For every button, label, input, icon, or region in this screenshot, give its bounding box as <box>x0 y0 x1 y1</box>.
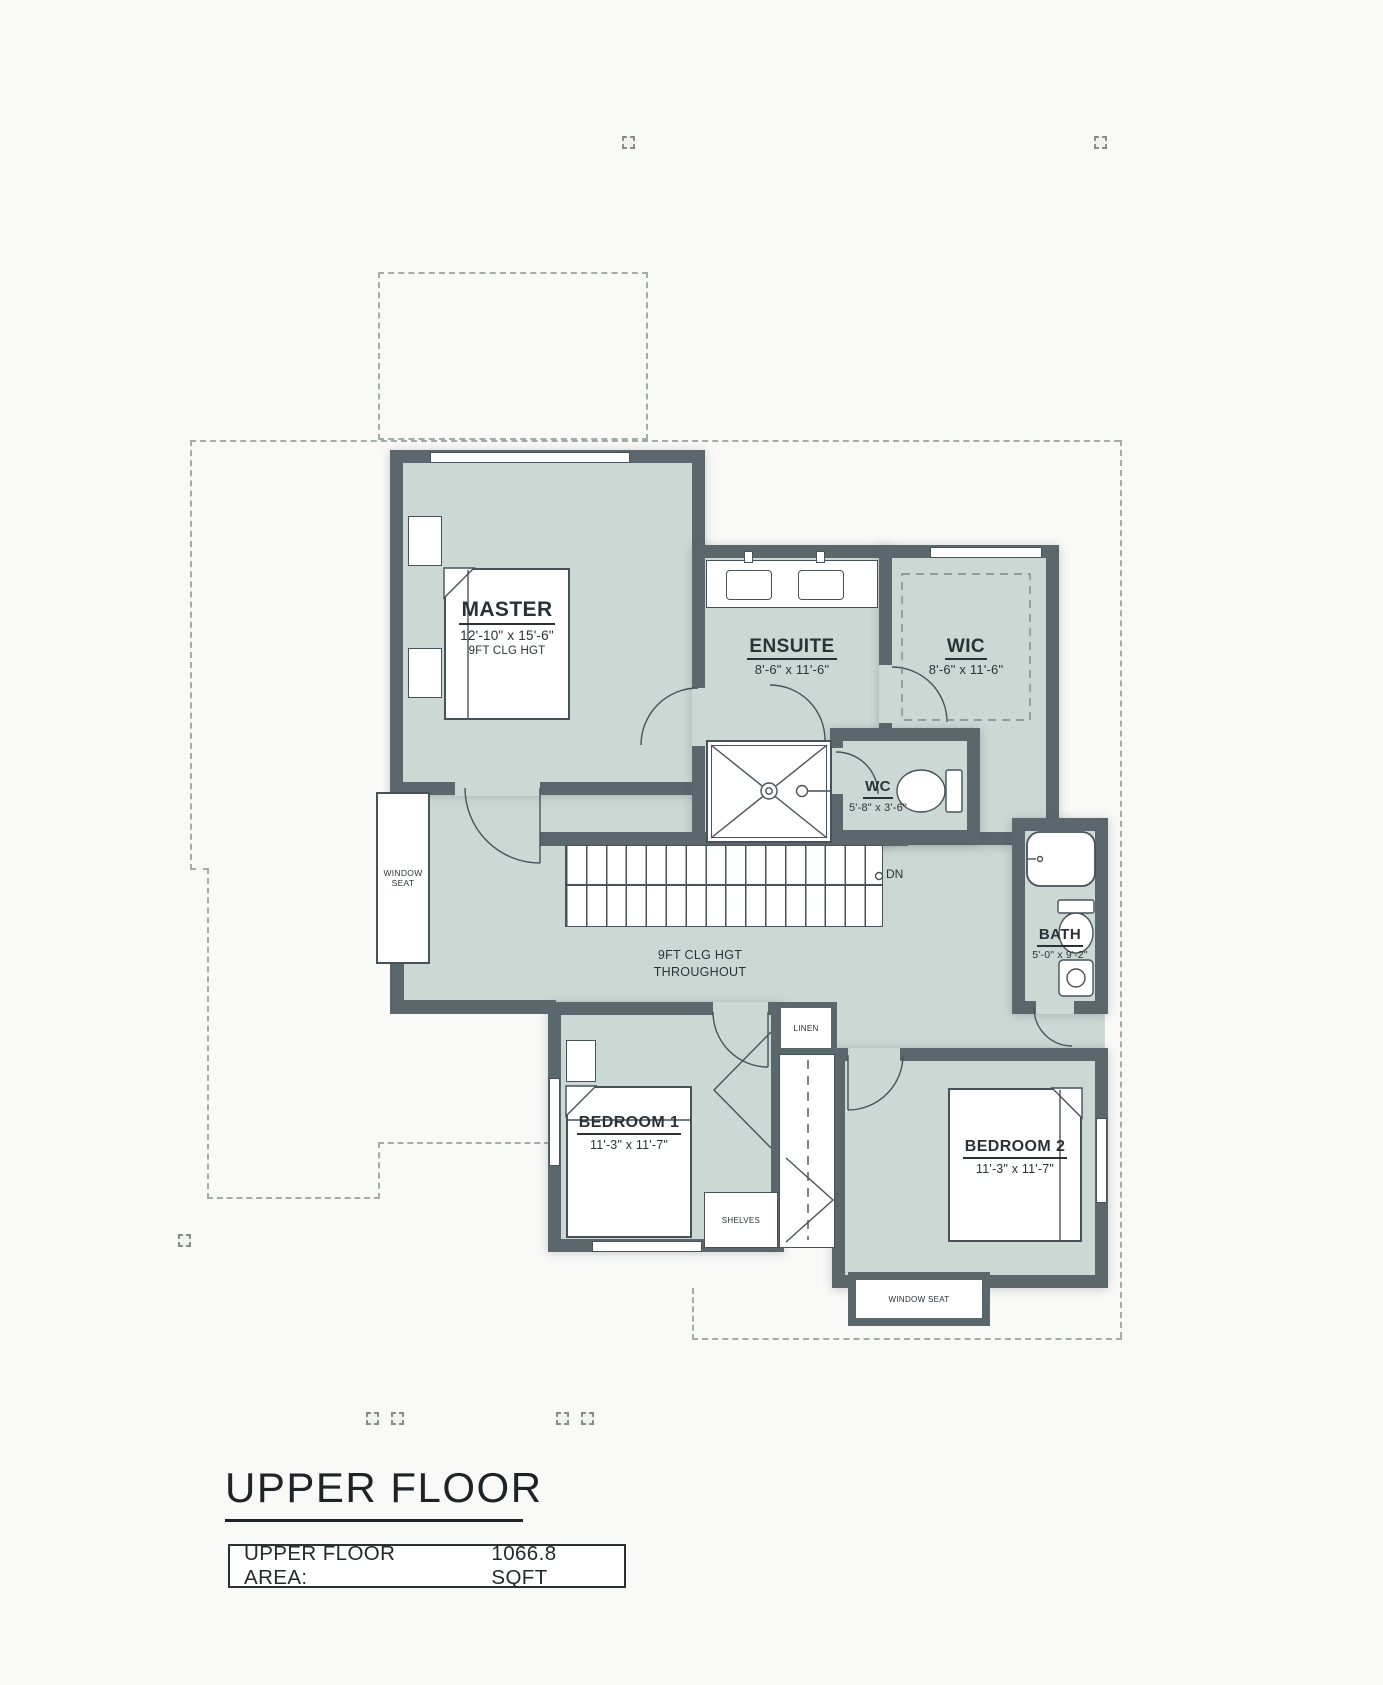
room-bath <box>1012 818 1108 1014</box>
roof-outline-v-bottom <box>692 1288 694 1340</box>
opening-bedroom2-door <box>848 1048 900 1062</box>
shower-inner-rim <box>711 745 827 838</box>
bath-name: BATH <box>1037 927 1083 947</box>
master-label: MASTER 12'-10" x 15'-6" 9FT CLG HGT <box>446 598 568 658</box>
hall-ceiling-note: 9FT CLG HGT THROUGHOUT <box>600 948 800 979</box>
wc-label: WC 5'-8" x 3'-6" <box>828 778 928 814</box>
bath-label: BATH 5'-0" x 9'-2" <box>1013 926 1107 962</box>
bath-dims: 5'-0" x 9'-2" <box>1013 950 1107 962</box>
hall-ceiling-note-line1: 9FT CLG HGT <box>600 948 800 962</box>
crop-mark-bottom-2b <box>581 1412 594 1425</box>
staircase-rail <box>565 884 883 886</box>
window-seat-left: WINDOW SEAT <box>376 792 430 964</box>
sheet-title-underline <box>225 1519 523 1522</box>
area-value: 1066.8 SQFT <box>491 1542 610 1590</box>
bedroom1-window-west <box>549 1078 560 1166</box>
opening-master-door <box>455 782 540 796</box>
staircase <box>565 845 883 927</box>
bedroom2-window-east <box>1096 1118 1107 1203</box>
bedroom2-label: BEDROOM 2 11'-3" x 11'-7" <box>946 1138 1084 1176</box>
crop-mark-top-left <box>622 136 635 149</box>
window-seat-left-label-2: SEAT <box>392 878 415 888</box>
opening-bath-door <box>1036 1001 1074 1014</box>
ensuite-sink-left <box>726 570 772 600</box>
shelves-label: SHELVES <box>722 1216 760 1225</box>
roof-outline-bottom-right <box>692 1338 1122 1340</box>
crop-mark-bottom-1b <box>391 1412 404 1425</box>
bedroom1-dims: 11'-3" x 11'-7" <box>564 1138 694 1152</box>
ensuite-name: ENSUITE <box>747 636 836 660</box>
roof-outline-left <box>190 440 192 870</box>
bedroom2-name: BEDROOM 2 <box>963 1138 1068 1159</box>
window-seat-bottom-label: WINDOW SEAT <box>889 1295 950 1304</box>
wc-dims: 5'-8" x 3'-6" <box>828 802 928 814</box>
hall-closet <box>779 1054 835 1248</box>
roof-outline-right <box>1120 440 1122 1338</box>
window-seat-left-label-1: WINDOW <box>383 868 422 878</box>
master-name: MASTER <box>459 598 554 625</box>
ensuite-faucet-right <box>816 551 825 563</box>
sheet-title: UPPER FLOOR <box>225 1464 543 1512</box>
bedroom1-name: BEDROOM 1 <box>577 1114 682 1135</box>
roof-outline-top <box>190 440 1120 442</box>
ensuite-label: ENSUITE 8'-6" x 11'-6" <box>700 636 884 678</box>
master-window <box>430 452 630 463</box>
master-nightstand-bottom <box>408 648 442 698</box>
window-seat-bottom: WINDOW SEAT <box>848 1272 990 1326</box>
crop-mark-left-bottom <box>178 1234 191 1247</box>
crop-mark-bottom-2a <box>556 1412 569 1425</box>
crop-mark-bottom-1a <box>366 1412 379 1425</box>
linen-closet: LINEN <box>775 1002 837 1054</box>
bedroom1-nightstand <box>566 1040 596 1082</box>
hall-south-wall <box>396 1000 556 1014</box>
master-dims: 12'-10" x 15'-6" <box>446 628 568 643</box>
opening-bedroom1-door <box>713 1002 768 1016</box>
wc-name: WC <box>863 779 893 799</box>
master-nightstand-top <box>408 516 442 566</box>
ensuite-sink-right <box>798 570 844 600</box>
stairs-dn-label: DN <box>886 868 926 881</box>
ensuite-faucet-left <box>744 551 753 563</box>
floor-plan-sheet: WINDOW SEAT LINEN SHELVES WINDOW SEAT <box>0 0 1383 1685</box>
opening-master-ensuite <box>692 688 706 746</box>
bedroom1-window-south <box>592 1241 702 1252</box>
roof-outline-v-left <box>378 1142 380 1199</box>
ensuite-dims: 8'-6" x 11'-6" <box>700 663 884 678</box>
roof-outline-h-left <box>378 1142 550 1144</box>
hall-ceiling-note-line2: THROUGHOUT <box>600 965 800 979</box>
wic-name: WIC <box>945 636 987 660</box>
crop-mark-top-right <box>1094 136 1107 149</box>
shelves-niche: SHELVES <box>704 1192 778 1248</box>
bedroom2-dims: 11'-3" x 11'-7" <box>946 1162 1084 1176</box>
linen-label: LINEN <box>793 1024 818 1033</box>
wic-dims: 8'-6" x 11'-6" <box>874 663 1058 678</box>
shower <box>706 740 832 843</box>
roof-outline-left-lower <box>207 868 209 1199</box>
bedroom1-label: BEDROOM 1 11'-3" x 11'-7" <box>564 1114 694 1152</box>
roof-outline-bottom-left <box>207 1197 380 1199</box>
wic-window <box>930 547 1042 558</box>
area-label: UPPER FLOOR AREA: <box>244 1542 449 1590</box>
wic-label: WIC 8'-6" x 11'-6" <box>874 636 1058 678</box>
area-summary-box: UPPER FLOOR AREA: 1066.8 SQFT <box>228 1544 626 1588</box>
roof-outline-garage <box>378 272 648 440</box>
master-ceiling-note: 9FT CLG HGT <box>446 645 568 658</box>
bedroom1-bed <box>566 1086 692 1238</box>
